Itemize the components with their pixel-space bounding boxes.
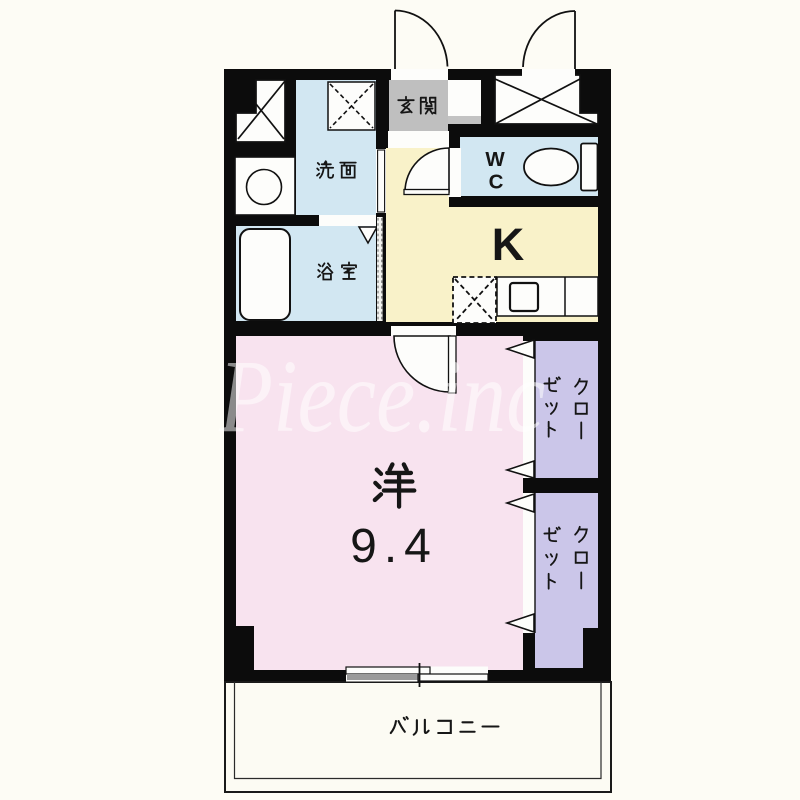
svg-text:9.4: 9.4 [350, 520, 438, 573]
svg-text:K: K [492, 219, 525, 270]
svg-text:W: W [485, 148, 505, 171]
svg-text:Piece.inc: Piece.inc [218, 338, 545, 453]
svg-text:C: C [489, 171, 504, 194]
